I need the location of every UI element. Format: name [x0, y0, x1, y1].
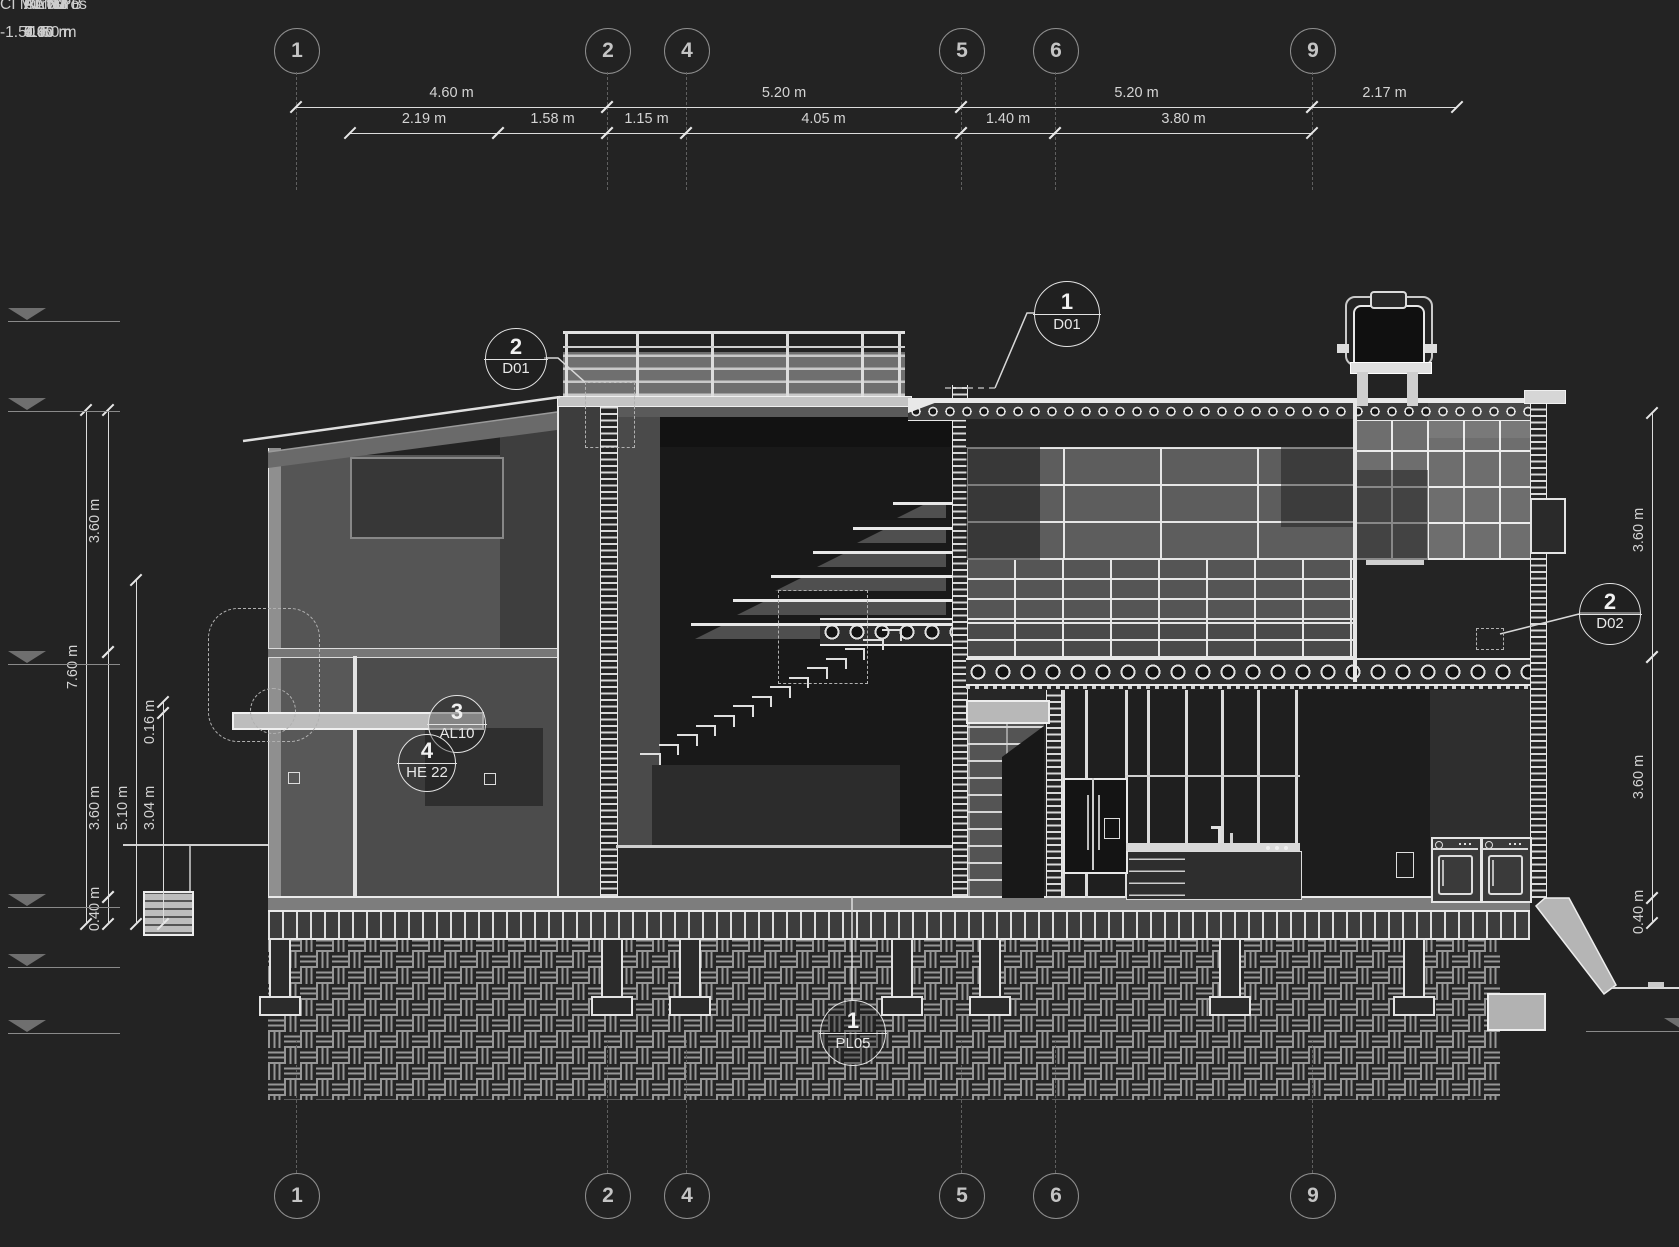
dim-label: 1.40 m	[986, 111, 1030, 127]
railing-mid-rail	[563, 346, 905, 348]
hatch-cell	[572, 968, 588, 984]
hatch-cell	[428, 1016, 444, 1032]
hatch-cell	[1164, 968, 1180, 984]
hatch-cell	[1068, 1080, 1084, 1096]
hatch-cell	[1084, 1048, 1100, 1064]
hatch-cell	[1308, 1032, 1324, 1048]
hatch-cell	[812, 952, 828, 968]
hatch-cell	[828, 984, 844, 1000]
fridge-dispenser	[1104, 818, 1120, 839]
hatch-cell	[1372, 984, 1388, 1000]
hatch-cell	[1004, 1032, 1020, 1048]
right-ramp	[1536, 898, 1616, 994]
hatch-cell	[1212, 1016, 1228, 1032]
hatch-cell	[444, 1032, 460, 1048]
hatch-cell	[908, 1048, 924, 1064]
level-flag-icon	[8, 651, 46, 663]
dim-label-vertical: 3.04 m	[142, 786, 158, 830]
level-marker-ci-muros	[8, 1012, 128, 1056]
hatch-cell	[1452, 1080, 1468, 1096]
callout-divider	[819, 1033, 887, 1034]
hatch-cell	[396, 1016, 412, 1032]
hatch-cell	[1068, 968, 1084, 984]
hatch-cell	[364, 1000, 380, 1016]
hatch-cell	[716, 1000, 732, 1016]
hatch-cell	[636, 1000, 652, 1016]
hatch-cell	[716, 968, 732, 984]
hatch-cell	[1116, 1032, 1132, 1048]
hatch-cell	[668, 1064, 684, 1080]
hatch-cell	[476, 952, 492, 968]
hatch-cell	[1036, 1048, 1052, 1064]
level-name: CI Muros	[0, 0, 63, 14]
hatch-cell	[524, 1016, 540, 1032]
hatch-cell	[844, 1064, 860, 1080]
hatch-cell	[1180, 952, 1196, 968]
hatch-cell	[652, 1064, 668, 1080]
level-flag-icon	[8, 894, 46, 906]
hatch-cell	[1372, 1032, 1388, 1048]
glazing-transom	[1125, 775, 1300, 777]
hatch-cell	[796, 952, 812, 968]
hatch-cell	[1356, 1016, 1372, 1032]
hatch-cell	[956, 1016, 972, 1032]
dim-label: 4.05 m	[801, 111, 845, 127]
base-cabinet	[1126, 851, 1302, 900]
hatch-cell	[380, 984, 396, 1000]
hatch-cell	[924, 1096, 940, 1100]
architectural-section-drawing: 1122445566994.60 m5.20 m5.20 m2.17 m2.19…	[0, 0, 1679, 1247]
hatch-cell	[620, 1032, 636, 1048]
hatch-cell	[284, 1064, 300, 1080]
level-flag-icon	[8, 1020, 46, 1032]
hatch-cell	[956, 1096, 972, 1100]
hatch-cell	[748, 1080, 764, 1096]
hatch-cell	[1164, 1016, 1180, 1032]
hatch-cell	[1340, 1000, 1356, 1016]
hatch-cell	[1196, 1048, 1212, 1064]
hatch-cell	[1084, 952, 1100, 968]
hatch-cell	[1212, 1048, 1228, 1064]
hatch-cell	[476, 1064, 492, 1080]
hatch-cell	[1084, 968, 1100, 984]
hatch-cell	[1084, 1064, 1100, 1080]
hatch-cell	[1116, 984, 1132, 1000]
hatch-cell	[572, 1096, 588, 1100]
hatch-cell	[1132, 952, 1148, 968]
hatch-cell	[300, 1032, 316, 1048]
hatch-cell	[1116, 952, 1132, 968]
hatch-cell	[380, 968, 396, 984]
hatch-cell	[1180, 968, 1196, 984]
hatch-cell	[1260, 1048, 1276, 1064]
hatch-cell	[764, 1016, 780, 1032]
hatch-cell	[1356, 1032, 1372, 1048]
hatch-cell	[540, 952, 556, 968]
footing-base	[669, 996, 711, 1016]
hatch-cell	[284, 1032, 300, 1048]
hatch-cell	[1356, 1064, 1372, 1080]
hatch-cell	[1292, 952, 1308, 968]
hatch-cell	[1388, 1064, 1404, 1080]
hatch-cell	[780, 1048, 796, 1064]
dim-label-vertical: 3.60 m	[87, 499, 103, 543]
hatch-cell	[1260, 1000, 1276, 1016]
hatch-cell	[524, 1032, 540, 1048]
hatch-cell	[876, 968, 892, 984]
hatch-cell	[1020, 1080, 1036, 1096]
stair-step	[640, 753, 661, 765]
hatch-cell	[940, 1000, 956, 1016]
level-flag-line	[8, 664, 120, 665]
hatch-cell	[316, 1080, 332, 1096]
hatch-cell	[1420, 1016, 1436, 1032]
hatch-cell	[444, 1080, 460, 1096]
hatch-cell	[1292, 1064, 1308, 1080]
hatch-cell	[1276, 984, 1292, 1000]
hatch-cell	[1100, 1016, 1116, 1032]
hatch-cell	[316, 1048, 332, 1064]
hatch-cell	[1164, 952, 1180, 968]
hatch-cell	[444, 968, 460, 984]
level-marker-aa-0-pb	[8, 946, 128, 990]
detail-callout-d01-2: 2D01	[485, 328, 547, 390]
exterior-stair-left	[143, 891, 194, 936]
footing-stem	[891, 938, 913, 1000]
hatch-cell	[700, 1032, 716, 1048]
footing-base	[1209, 996, 1251, 1016]
hatch-cell	[1308, 984, 1324, 1000]
hatch-cell	[620, 1096, 636, 1100]
hatch-cell	[1084, 1096, 1100, 1100]
hatch-cell	[1436, 1064, 1452, 1080]
hatch-cell	[1020, 952, 1036, 968]
hatch-cell	[764, 1032, 780, 1048]
central-plinth	[616, 848, 952, 896]
hatch-cell	[940, 968, 956, 984]
grid-line-stub-bottom	[296, 1040, 297, 1173]
level-marker-pl-n1	[8, 886, 128, 930]
hatch-cell	[1292, 1016, 1308, 1032]
grid-bubble-4: 4	[664, 28, 710, 74]
hatch-cell	[1468, 1064, 1484, 1080]
hatch-cell	[412, 984, 428, 1000]
hatch-cell	[892, 1096, 908, 1100]
left-volume-inner-wall	[353, 656, 357, 896]
hatch-cell	[412, 1048, 428, 1064]
level-flag-line	[8, 1033, 120, 1034]
hatch-cell	[300, 1000, 316, 1016]
hatch-cell	[1436, 1080, 1452, 1096]
hatch-cell	[700, 952, 716, 968]
hatch-cell	[1324, 984, 1340, 1000]
hatch-cell	[1292, 1032, 1308, 1048]
hatch-cell	[1308, 1048, 1324, 1064]
cabinet-drawers	[1129, 858, 1185, 896]
hatch-cell	[364, 1096, 380, 1100]
left-volume-dark-column	[500, 430, 557, 650]
hatch-cell	[1020, 1048, 1036, 1064]
level-flag-icon	[8, 308, 46, 320]
hatch-cell	[396, 1064, 412, 1080]
hatch-cell	[652, 1032, 668, 1048]
stair-step	[659, 744, 680, 756]
hatch-cell	[1100, 952, 1116, 968]
hatch-cell	[1308, 1064, 1324, 1080]
hatch-cell	[332, 1048, 348, 1064]
hatch-cell	[732, 968, 748, 984]
hatch-cell	[1068, 1016, 1084, 1032]
hatch-cell	[332, 984, 348, 1000]
hatch-cell	[556, 1048, 572, 1064]
hatch-cell	[908, 1032, 924, 1048]
hatch-cell	[1036, 952, 1052, 968]
hatch-cell	[796, 984, 812, 1000]
hatch-cell	[1148, 1080, 1164, 1096]
hatch-cell	[1164, 1048, 1180, 1064]
hatch-cell	[748, 984, 764, 1000]
hatch-cell	[1324, 1064, 1340, 1080]
hatch-cell	[988, 1016, 1004, 1032]
detail-area-d02	[1476, 628, 1504, 650]
hatch-cell	[284, 1096, 300, 1100]
hatch-cell	[1052, 1016, 1068, 1032]
grid-bubble-2: 2	[585, 28, 631, 74]
hatch-cell	[1100, 1064, 1116, 1080]
hatch-cell	[460, 1096, 476, 1100]
hatch-cell	[796, 1064, 812, 1080]
hatch-cell	[1468, 1000, 1484, 1016]
hatch-cell	[1132, 1080, 1148, 1096]
hatch-cell	[1340, 968, 1356, 984]
hatch-cell	[940, 952, 956, 968]
hatch-cell	[876, 1096, 892, 1100]
stair-step	[696, 725, 717, 737]
hatch-cell	[460, 952, 476, 968]
stair-step	[882, 629, 903, 641]
hatch-cell	[268, 1048, 284, 1064]
hatch-cell	[332, 1016, 348, 1032]
hatch-cell	[716, 1016, 732, 1032]
hatch-cell	[348, 1048, 364, 1064]
callout-code: D01	[486, 361, 546, 376]
hatch-cell	[1180, 1000, 1196, 1016]
hatch-cell	[1372, 1016, 1388, 1032]
hatch-cell	[428, 968, 444, 984]
hatch-cell	[1180, 1096, 1196, 1100]
hatch-cell	[636, 1080, 652, 1096]
detail-callout-he22-4: 4HE 22	[398, 734, 456, 792]
level-marker-aa-n4	[8, 300, 128, 344]
hatch-cell	[556, 1032, 572, 1048]
hatch-cell	[1420, 1096, 1436, 1100]
hatch-cell	[716, 1064, 732, 1080]
hatch-cell	[300, 1064, 316, 1080]
hatch-cell	[1180, 1032, 1196, 1048]
hatch-cell	[1420, 1080, 1436, 1096]
hatch-cell	[364, 968, 380, 984]
hatch-cell	[348, 1096, 364, 1100]
hatch-cell	[828, 968, 844, 984]
hatch-cell	[636, 1016, 652, 1032]
hatch-cell	[636, 952, 652, 968]
central-ceiling-dark-band	[616, 417, 952, 447]
hatch-cell	[1116, 1080, 1132, 1096]
level-marker-aa-n3	[8, 390, 128, 434]
hatch-cell	[812, 1096, 828, 1100]
detail-callout-d01-1: 1D01	[1034, 281, 1100, 347]
hatch-cell	[364, 1048, 380, 1064]
detail-area-stair	[778, 590, 868, 684]
dim-label-vertical: 3.60 m	[87, 786, 103, 830]
hatch-cell	[972, 1048, 988, 1064]
tower-separation-wall	[1353, 398, 1357, 682]
hatch-cell	[524, 1000, 540, 1016]
detail-callout-pl05-1: 1PL05	[820, 1000, 886, 1066]
hatch-cell	[348, 968, 364, 984]
level-marker-ci-muros	[1586, 1010, 1679, 1054]
hatch-cell	[1036, 984, 1052, 1000]
hatch-cell	[1068, 1096, 1084, 1100]
level-marker-pl-n2	[8, 643, 128, 687]
level-flag-line	[8, 967, 120, 968]
hatch-cell	[364, 984, 380, 1000]
hatch-cell	[652, 952, 668, 968]
hatch-cell	[492, 1080, 508, 1096]
hatch-cell	[492, 984, 508, 1000]
hatch-cell	[1004, 1080, 1020, 1096]
hatch-cell	[1420, 1032, 1436, 1048]
hatch-cell	[1244, 1096, 1260, 1100]
grid-bubble-1: 1	[274, 28, 320, 74]
hatch-cell	[1308, 1096, 1324, 1100]
hatch-cell	[1452, 1032, 1468, 1048]
hatch-cell	[396, 952, 412, 968]
hatch-cell	[572, 1000, 588, 1016]
hatch-cell	[300, 1096, 316, 1100]
hatch-cell	[348, 1064, 364, 1080]
hatch-cell	[1276, 1096, 1292, 1100]
hatch-cell	[508, 1000, 524, 1016]
hatch-cell	[876, 1080, 892, 1096]
hatch-cell	[1116, 1064, 1132, 1080]
hatch-cell	[1052, 984, 1068, 1000]
hatch-cell	[412, 1016, 428, 1032]
hatch-cell	[1404, 1096, 1420, 1100]
tower-shelf-line	[1366, 560, 1424, 565]
level-flag-icon	[8, 398, 46, 410]
hatch-cell	[524, 952, 540, 968]
hatch-cell	[1388, 1096, 1404, 1100]
hatch-cell	[524, 1048, 540, 1064]
hatch-cell	[1020, 1016, 1036, 1032]
hatch-cell	[924, 1048, 940, 1064]
callout-code: D02	[1580, 616, 1640, 631]
footing-stem	[1403, 938, 1425, 1000]
hatch-cell	[988, 1080, 1004, 1096]
hatch-cell	[716, 984, 732, 1000]
hatch-cell	[396, 1048, 412, 1064]
hatch-cell	[860, 984, 876, 1000]
hatch-cell	[892, 1016, 908, 1032]
hatch-cell	[1436, 984, 1452, 1000]
water-tank-leg	[1357, 372, 1368, 406]
hatch-cell	[1148, 984, 1164, 1000]
hatch-cell	[1100, 984, 1116, 1000]
appliance-dial	[1435, 841, 1443, 849]
appliance-dial	[1485, 841, 1493, 849]
hatch-cell	[556, 952, 572, 968]
railing-post	[711, 331, 714, 401]
hatch-cell	[1452, 984, 1468, 1000]
hatch-cell	[924, 1000, 940, 1016]
hatch-cell	[668, 1080, 684, 1096]
hatch-cell	[1372, 1080, 1388, 1096]
hatch-cell	[1404, 1016, 1420, 1032]
hatch-cell	[636, 984, 652, 1000]
callout-code: D01	[1035, 317, 1099, 332]
hatch-cell	[1468, 1080, 1484, 1096]
hatch-cell	[796, 1080, 812, 1096]
hatch-cell	[892, 1032, 908, 1048]
hatch-cell	[1468, 952, 1484, 968]
hatch-cell	[1084, 1000, 1100, 1016]
hatch-cell	[316, 984, 332, 1000]
hatch-cell	[924, 1016, 940, 1032]
hatch-cell	[268, 1080, 284, 1096]
hatch-cell	[780, 1032, 796, 1048]
hatch-cell	[844, 968, 860, 984]
hatch-cell	[892, 1064, 908, 1080]
stair-tread-line	[893, 502, 952, 505]
hatch-cell	[556, 984, 572, 1000]
railing-post	[898, 331, 901, 401]
hatch-cell	[364, 952, 380, 968]
dim-label: 3.80 m	[1161, 111, 1205, 127]
hatch-cell	[492, 1016, 508, 1032]
footing-base	[969, 996, 1011, 1016]
appliance-buttons	[1509, 843, 1523, 845]
fridge-handle	[1098, 795, 1100, 850]
hatch-cell	[1276, 1048, 1292, 1064]
hatch-cell	[556, 1016, 572, 1032]
hatch-cell	[492, 1032, 508, 1048]
mid-slab-hollowcore-right	[966, 658, 1530, 686]
stair-step	[677, 734, 698, 746]
hatch-cell	[1052, 968, 1068, 984]
hatch-cell	[764, 952, 780, 968]
hatch-cell	[780, 1000, 796, 1016]
hatch-cell	[1004, 1048, 1020, 1064]
hatch-cell	[572, 984, 588, 1000]
hatch-cell	[556, 1064, 572, 1080]
hatch-cell	[428, 952, 444, 968]
hatch-cell	[1180, 984, 1196, 1000]
hatch-cell	[668, 1048, 684, 1064]
hatch-cell	[1116, 1096, 1132, 1100]
hatch-cell	[604, 1016, 620, 1032]
hatch-cell	[924, 1032, 940, 1048]
hatch-cell	[716, 952, 732, 968]
detail-area-circle	[250, 688, 296, 734]
hatch-cell	[316, 1016, 332, 1032]
callout-number: 4	[399, 740, 455, 762]
hatch-cell	[316, 1064, 332, 1080]
hatch-cell	[924, 984, 940, 1000]
hatch-cell	[764, 968, 780, 984]
hatch-cell	[1436, 1016, 1452, 1032]
hatch-cell	[1212, 1064, 1228, 1080]
